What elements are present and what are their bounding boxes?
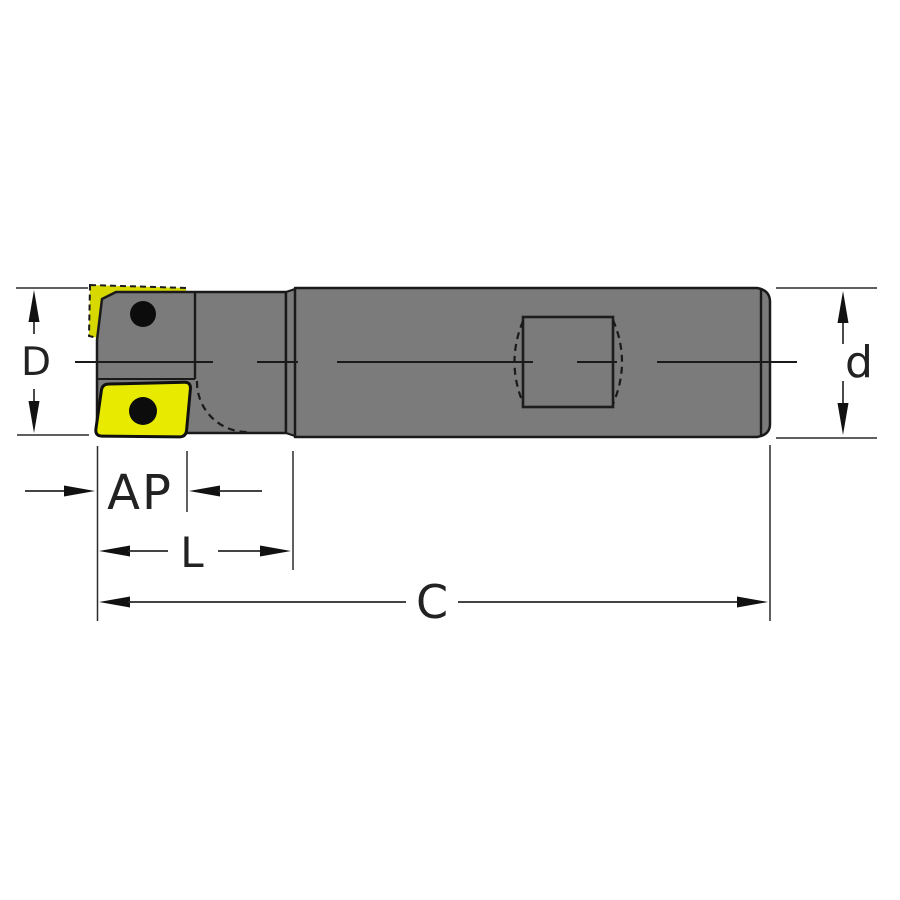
dimension-AP: AP xyxy=(25,446,262,621)
arrowhead-down-icon xyxy=(29,401,40,433)
arrowhead-left-icon xyxy=(99,546,130,557)
label-D: D xyxy=(21,340,51,385)
arrowhead-left-icon xyxy=(99,597,130,608)
screw-hole-top xyxy=(130,301,156,327)
arrowhead-right-icon xyxy=(64,486,95,497)
arrowhead-up-icon xyxy=(29,290,40,322)
label-d: d xyxy=(845,337,873,388)
label-C: C xyxy=(416,575,448,629)
arrowhead-up-icon xyxy=(838,291,849,323)
end-mill-diagram: D d AP L C xyxy=(0,0,900,900)
label-AP: AP xyxy=(107,465,173,521)
screw-hole-bottom xyxy=(129,397,157,425)
drawing-canvas: D d AP L C xyxy=(0,0,900,900)
arrowhead-left-icon xyxy=(189,486,220,497)
arrowhead-right-icon xyxy=(260,546,291,557)
label-L: L xyxy=(180,528,204,577)
arrowhead-down-icon xyxy=(838,403,849,435)
arrowhead-right-icon xyxy=(737,597,768,608)
